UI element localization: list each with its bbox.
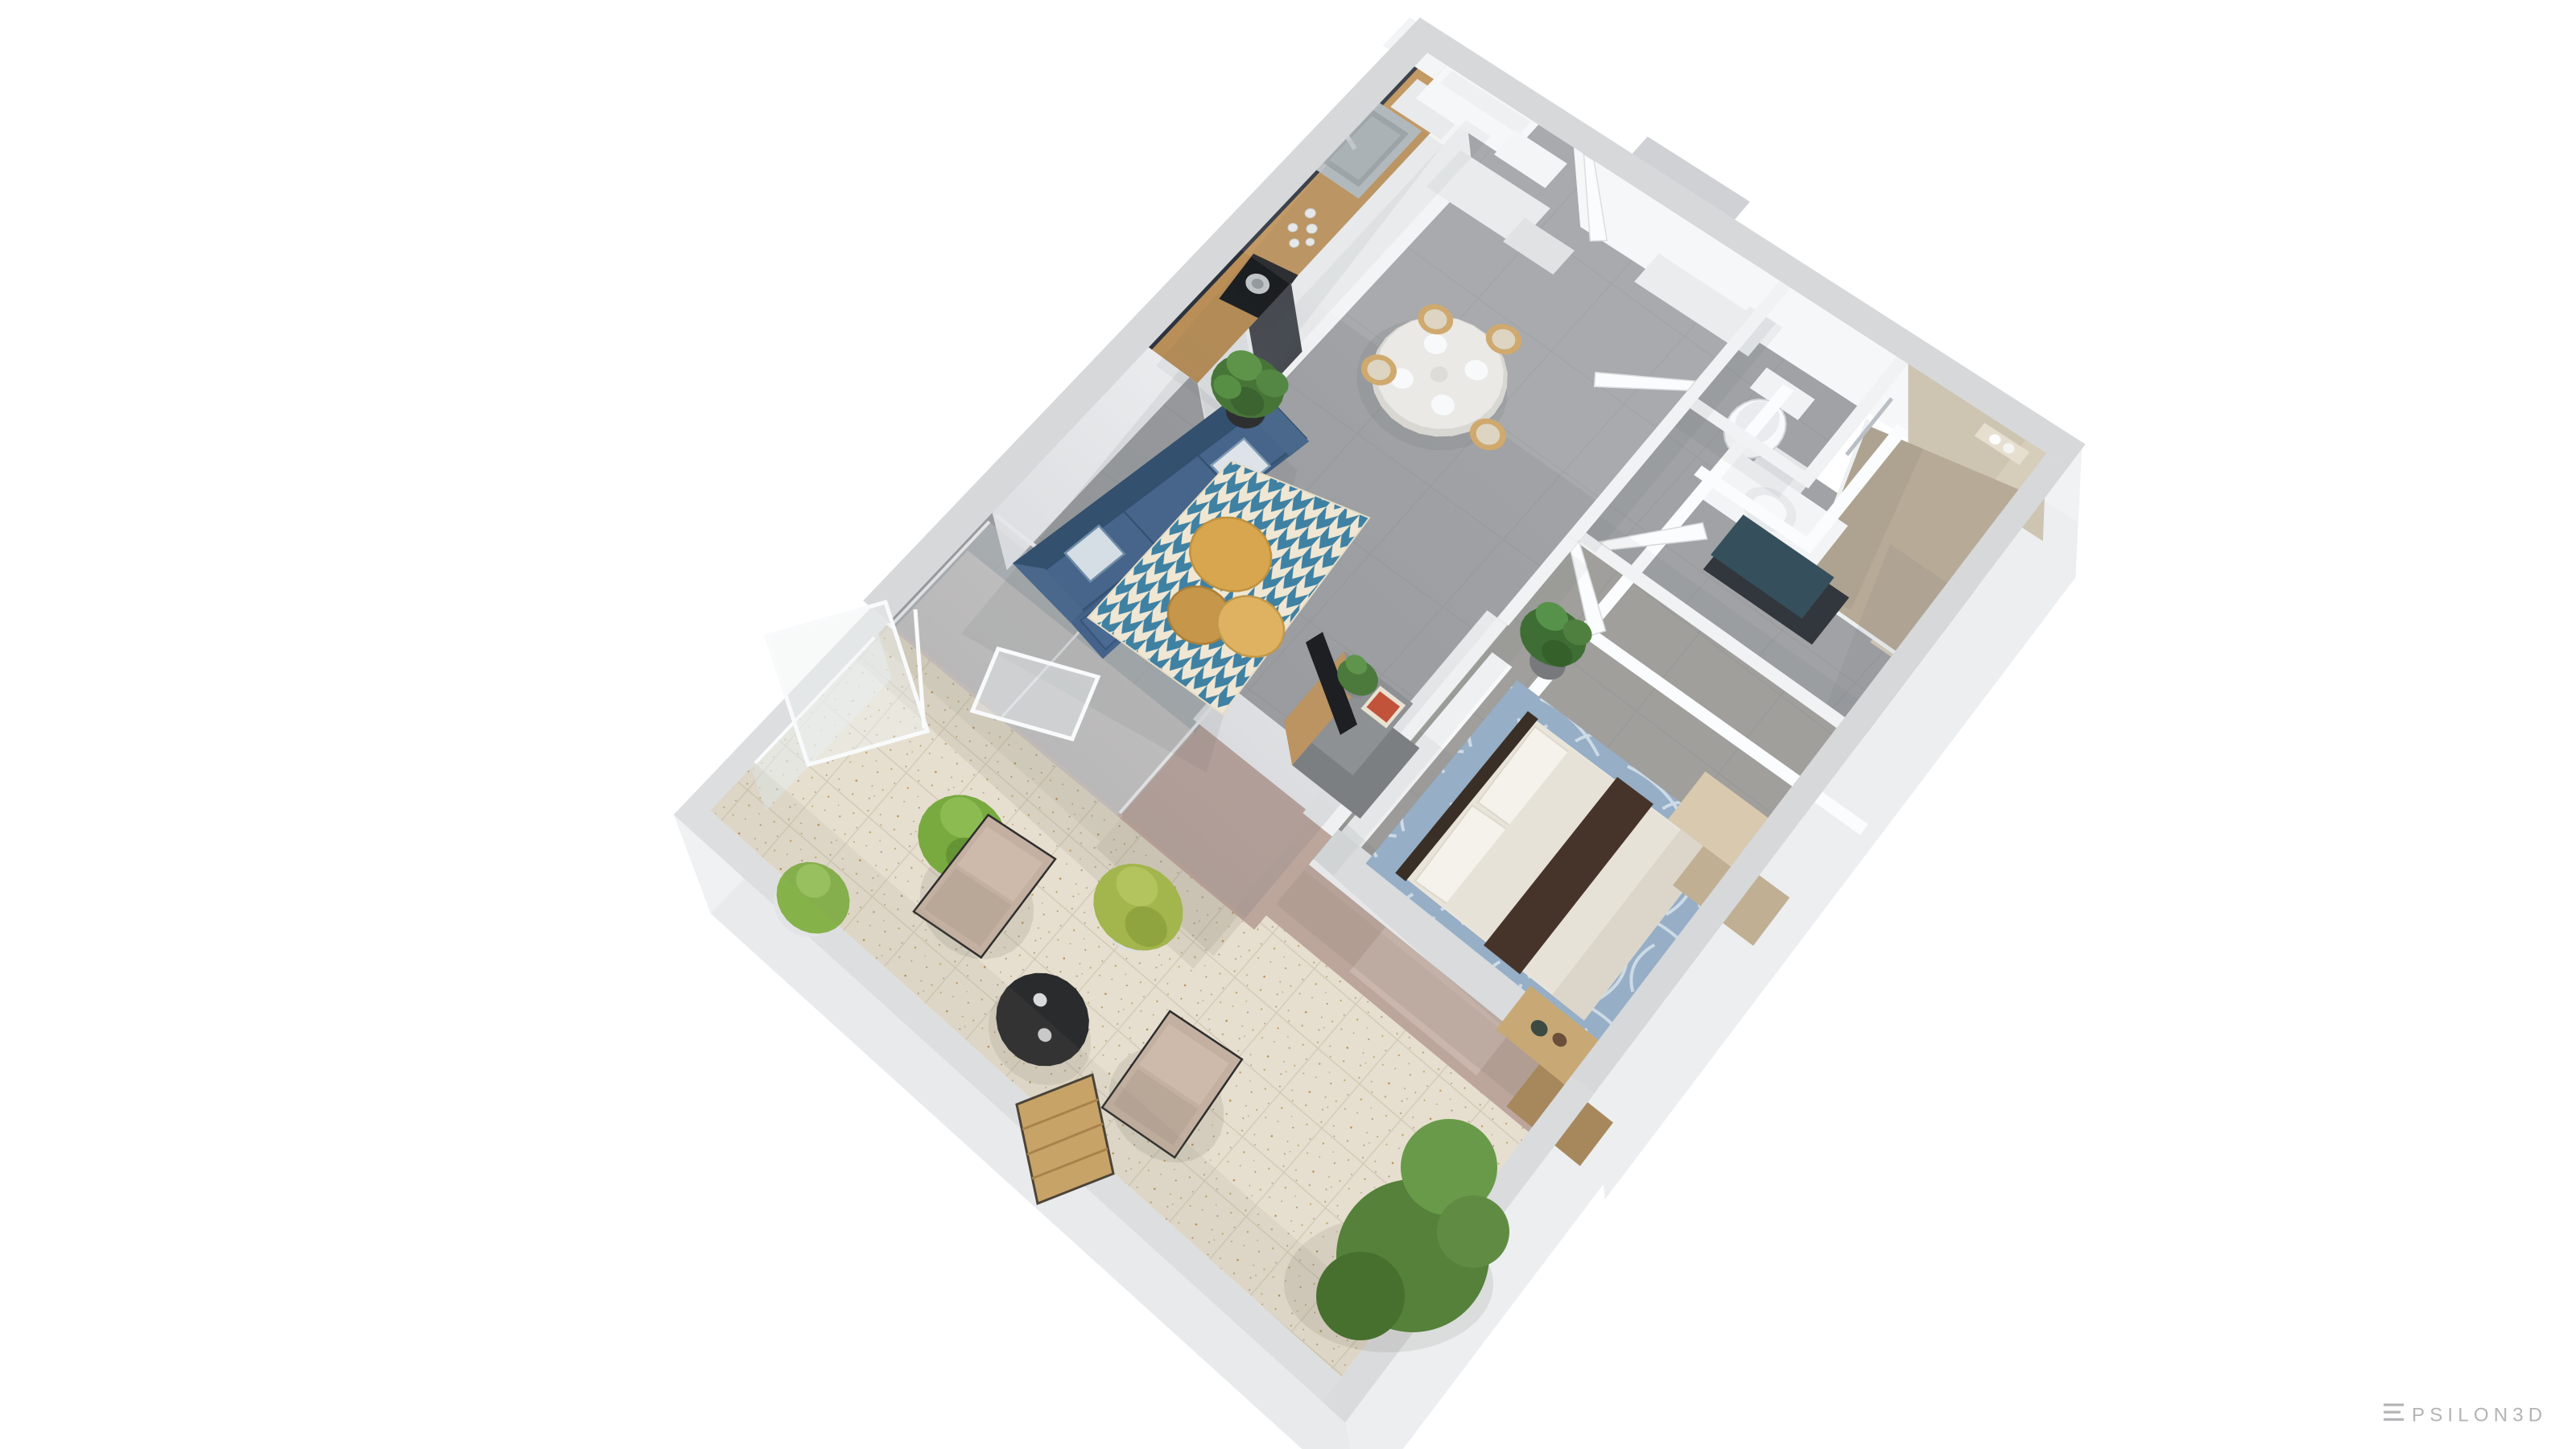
svg-text:PSILON3D: PSILON3D [2412, 1405, 2547, 1426]
